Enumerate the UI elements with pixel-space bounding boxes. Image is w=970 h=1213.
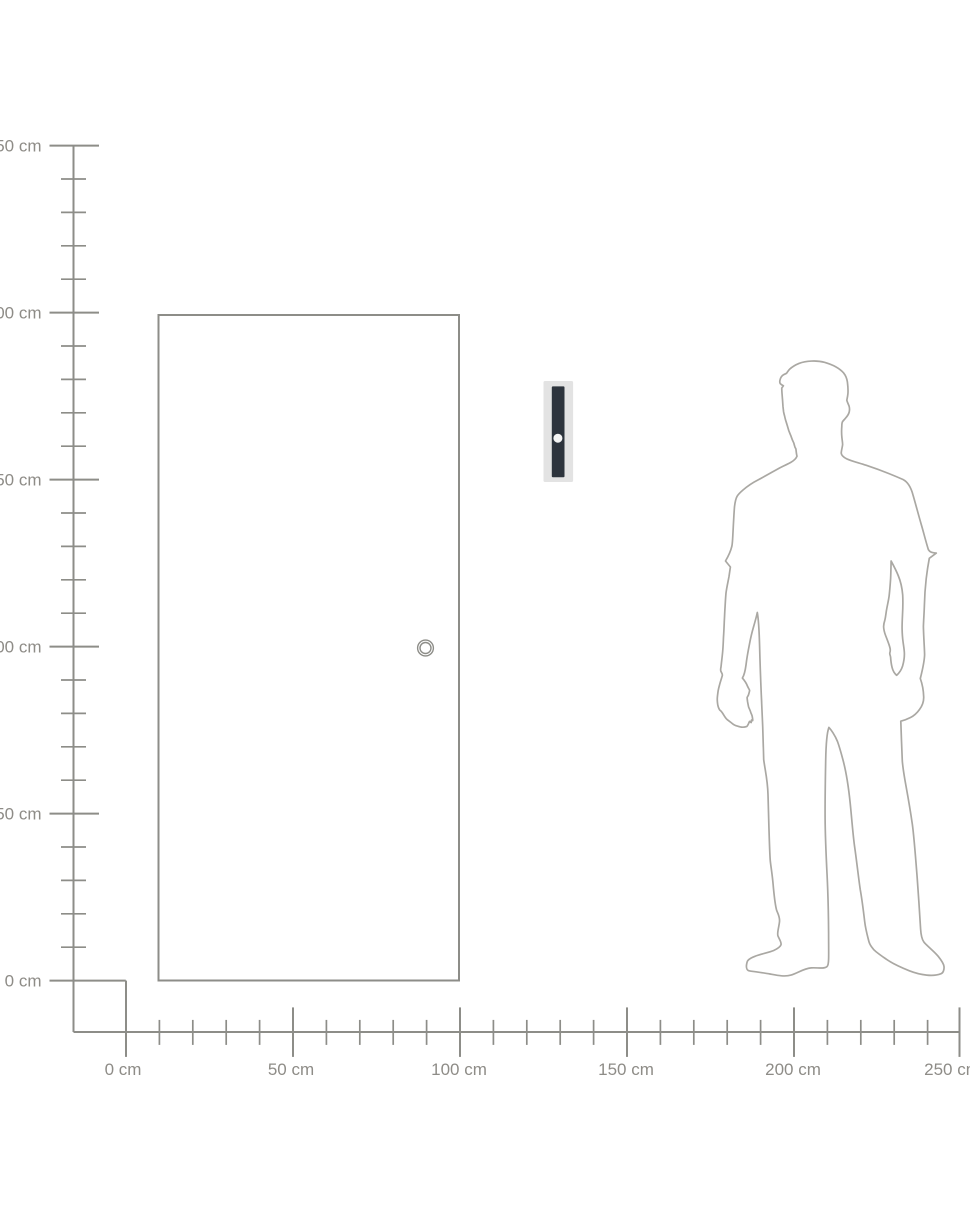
svg-text:150 cm: 150 cm [598, 1060, 654, 1079]
svg-text:200 cm: 200 cm [0, 304, 42, 323]
svg-text:0 cm: 0 cm [105, 1060, 142, 1079]
svg-text:250 cm: 250 cm [0, 137, 42, 156]
svg-text:250 cm: 250 cm [924, 1060, 970, 1079]
svg-text:100 cm: 100 cm [431, 1060, 487, 1079]
svg-text:100 cm: 100 cm [0, 638, 42, 657]
svg-text:0 cm: 0 cm [5, 972, 42, 991]
svg-text:150 cm: 150 cm [0, 471, 42, 490]
svg-text:50 cm: 50 cm [268, 1060, 314, 1079]
svg-text:200 cm: 200 cm [765, 1060, 821, 1079]
svg-text:50 cm: 50 cm [0, 805, 42, 824]
